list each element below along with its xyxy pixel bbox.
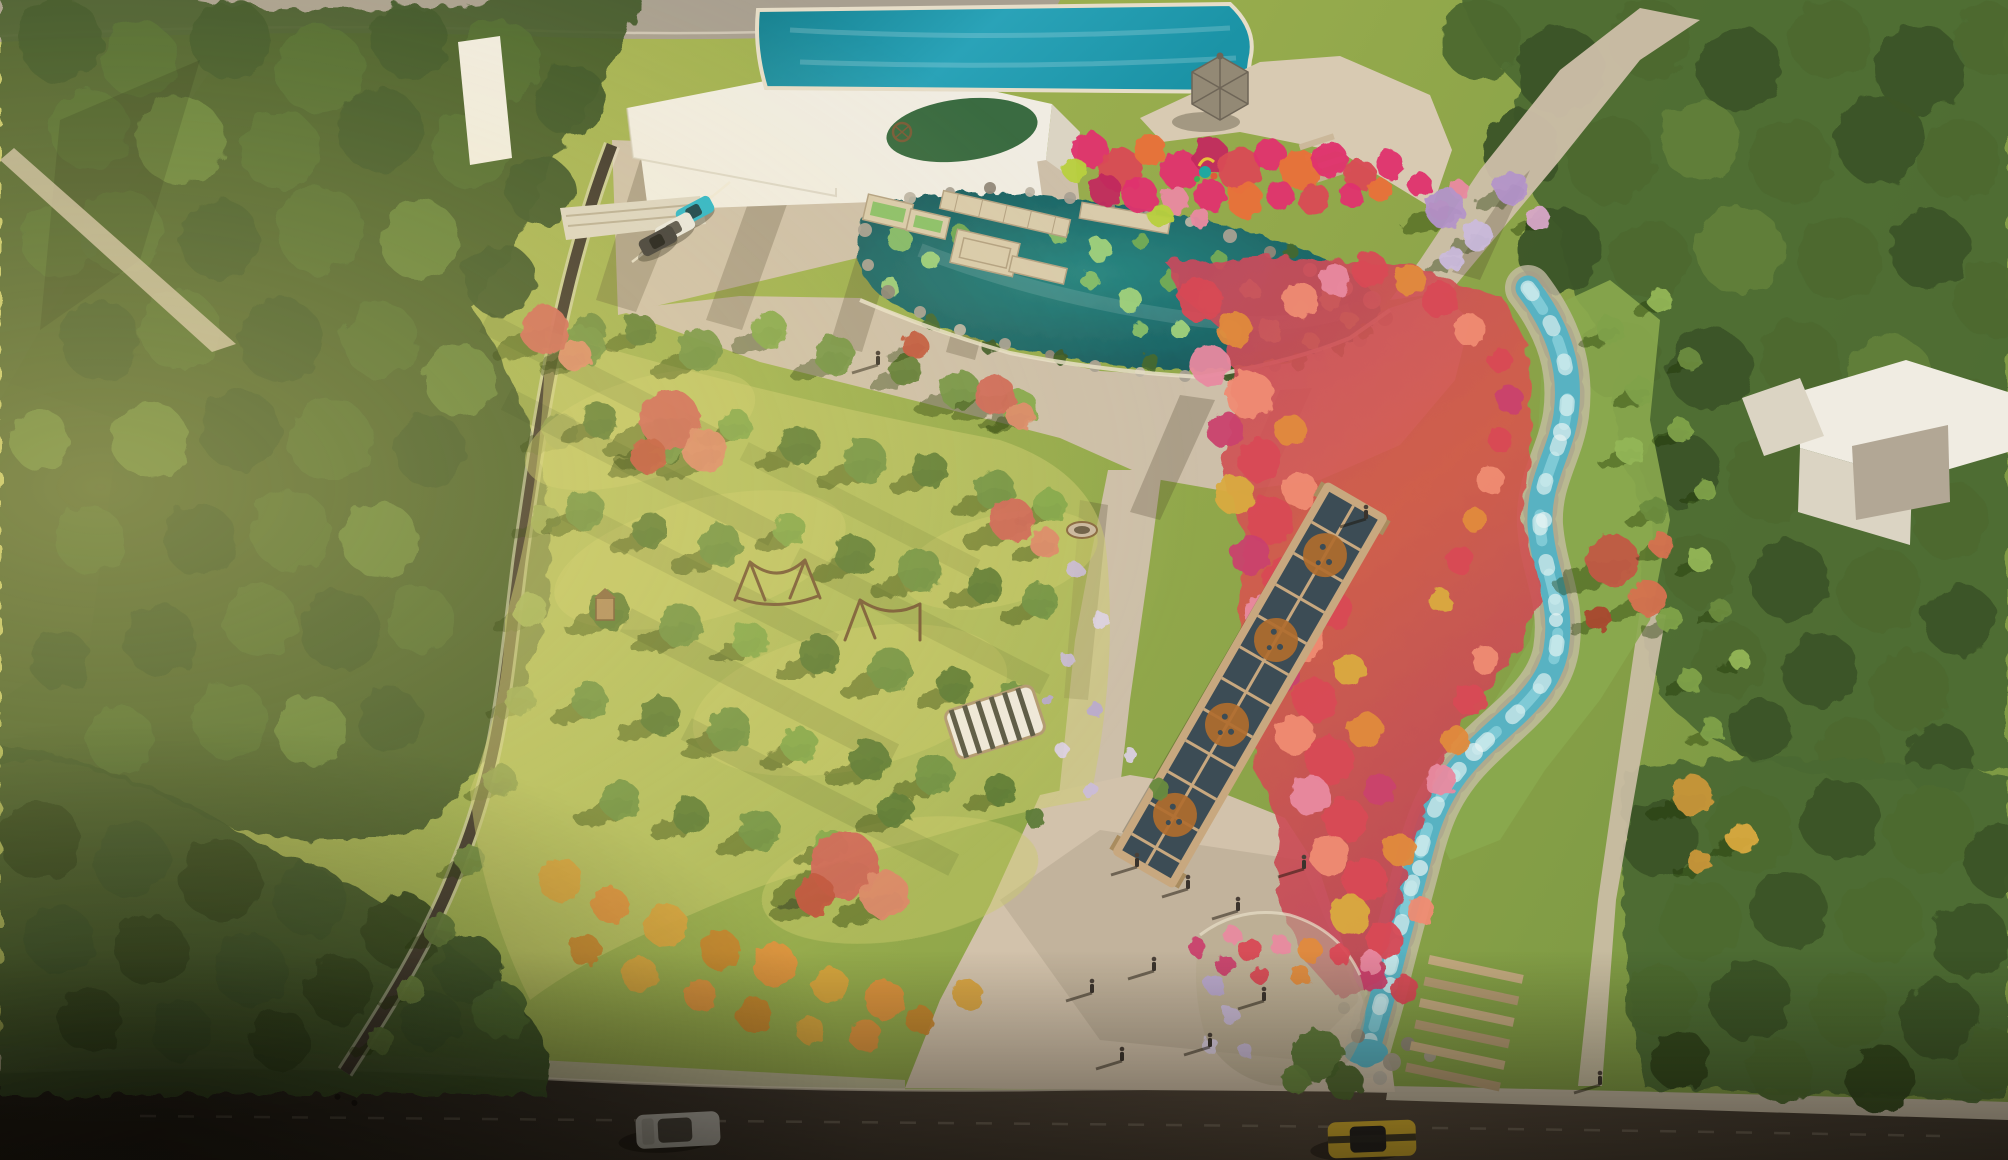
park-aerial-render: Bird's-eye 3D rendering of a park: lotus… (0, 0, 2008, 1160)
atmosphere (0, 0, 2008, 1160)
corner-shadow-overlay (0, 0, 2008, 1160)
scene-canvas: Bird's-eye 3D rendering of a park: lotus… (0, 0, 2008, 1160)
